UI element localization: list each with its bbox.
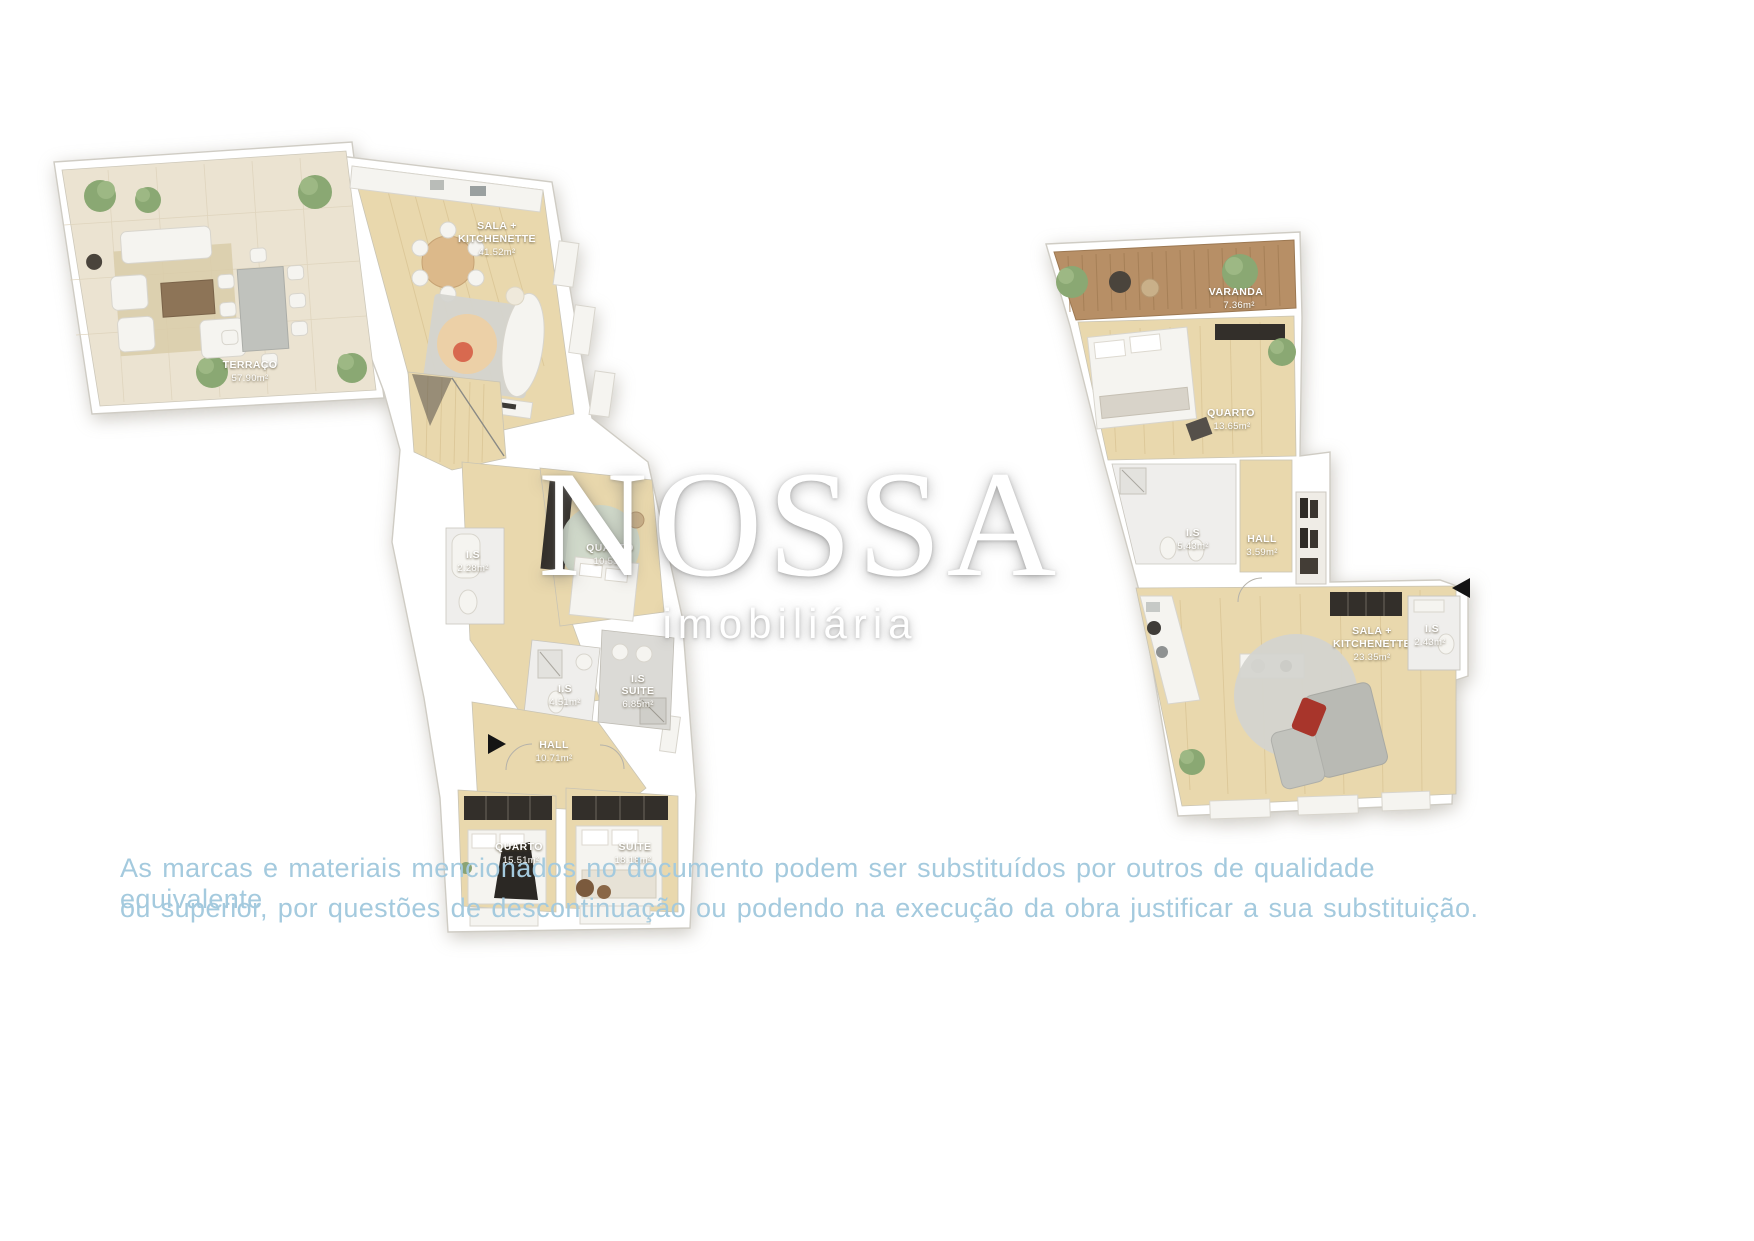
room-label: HALL <box>539 739 569 751</box>
room-label: I.S <box>558 683 572 695</box>
staircase <box>408 372 506 470</box>
room-label: KITCHENETTE <box>458 233 536 245</box>
room-label: VARANDA <box>1209 286 1264 298</box>
room-area: 2.43m² <box>1414 637 1445 648</box>
room-area: 6.85m² <box>622 699 653 710</box>
room-hall-right: HALL 3.59m² <box>1240 460 1292 572</box>
room-label: SUITE <box>619 841 652 853</box>
room-area: 3.59m² <box>1246 547 1277 558</box>
watermark-tagline: imobiliária <box>640 600 940 648</box>
room-varanda: VARANDA 7.36m² <box>1054 240 1296 320</box>
room-area: 23.35m² <box>1354 652 1391 663</box>
room-area: 5.43m² <box>1177 541 1208 552</box>
room-label: QUARTO <box>1207 407 1255 419</box>
room-label: I.S <box>466 549 480 561</box>
watermark-brand: NOSSA <box>538 448 1058 600</box>
room-area: 7.36m² <box>1223 300 1254 311</box>
room-area: 41.52m² <box>479 247 516 258</box>
room-is-hall: I.S 4.51m² <box>524 640 600 722</box>
room-area: 13.65m² <box>1214 421 1251 432</box>
room-is-small: I.S 2.28m² <box>446 528 504 624</box>
room-label: HALL <box>1247 533 1277 545</box>
kitchen-sink <box>430 180 444 190</box>
room-label: TERRAÇO <box>223 359 278 371</box>
room-area: 4.51m² <box>549 697 580 708</box>
room-area: 2.28m² <box>457 563 488 574</box>
room-terraco: TERRAÇO 57.90m² <box>62 151 376 406</box>
kitchen-stove <box>470 186 486 196</box>
room-area: 10.71m² <box>536 753 573 764</box>
floor-plan-right: VARANDA 7.36m² QUARTO 13.65m² <box>1046 232 1470 819</box>
disclaimer-line-2: ou superior, por questões de descontinua… <box>120 893 1520 924</box>
room-is-tiny: I.S 2.43m² <box>1408 596 1460 670</box>
room-label: I.S <box>631 673 645 685</box>
flyer-page: TERRAÇO 57.90m² <box>0 0 1754 1241</box>
hall-wardrobe <box>1296 492 1326 584</box>
room-area: 57.90m² <box>232 373 269 384</box>
room-label: QUARTO <box>495 841 543 853</box>
room-label: I.S <box>1186 527 1200 539</box>
room-quarto-right: QUARTO 13.65m² <box>1078 316 1296 460</box>
room-label: KITCHENETTE <box>1333 638 1411 650</box>
room-label: SUITE <box>622 685 655 697</box>
room-label: SALA + <box>1352 625 1392 637</box>
room-label: I.S <box>1425 623 1439 635</box>
room-label: SALA + <box>477 220 517 232</box>
bed <box>1087 327 1196 429</box>
